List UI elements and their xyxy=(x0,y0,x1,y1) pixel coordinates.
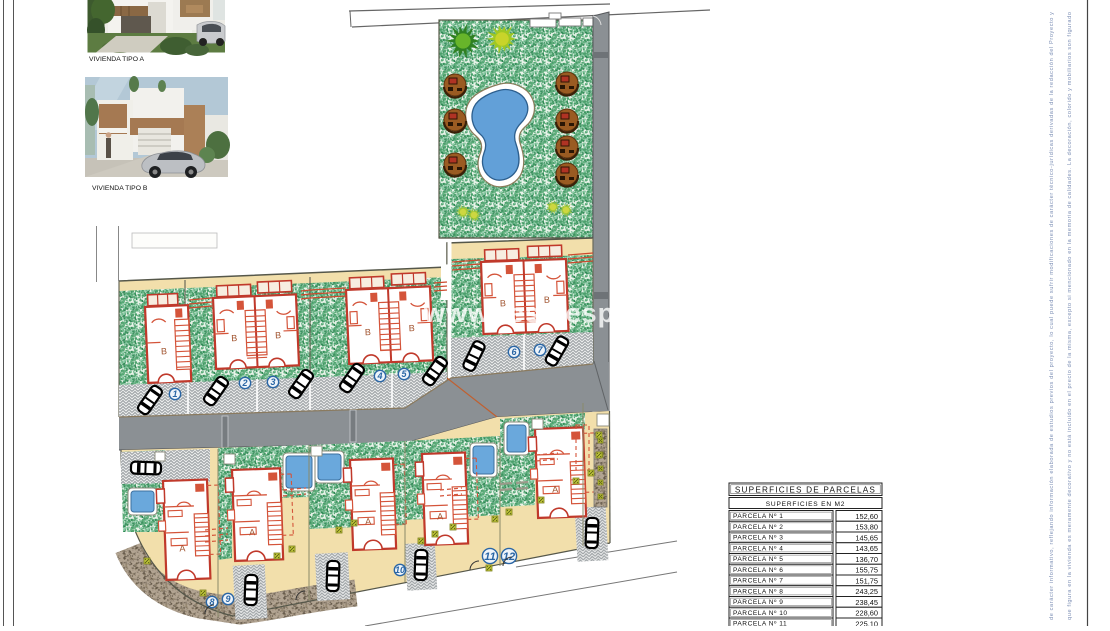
svg-text:www.resalespainhomes: www.resalespainhomes xyxy=(423,298,749,328)
svg-text:SUPERFICIES EN M2: SUPERFICIES EN M2 xyxy=(766,501,846,508)
svg-text:PARCELA Nº 2: PARCELA Nº 2 xyxy=(733,524,783,531)
svg-text:10: 10 xyxy=(395,565,405,575)
svg-text:VIVIENDA TIPO B: VIVIENDA TIPO B xyxy=(92,185,148,192)
svg-text:PARCELA Nº 4: PARCELA Nº 4 xyxy=(733,545,783,552)
svg-text:A: A xyxy=(552,484,558,494)
svg-text:A: A xyxy=(249,527,255,537)
svg-text:9: 9 xyxy=(225,594,230,604)
svg-text:PARCELA Nº 8: PARCELA Nº 8 xyxy=(733,588,783,595)
svg-text:A: A xyxy=(437,511,443,521)
svg-text:B: B xyxy=(231,333,237,343)
svg-text:136,70: 136,70 xyxy=(855,555,878,564)
svg-text:228,60: 228,60 xyxy=(855,609,878,618)
svg-text:1: 1 xyxy=(172,389,177,399)
svg-text:155,75: 155,75 xyxy=(855,566,878,575)
svg-text:2: 2 xyxy=(241,378,247,388)
svg-text:que figura en la vivienda es m: que figura en la vivienda es meramente d… xyxy=(1067,12,1073,620)
svg-text:B: B xyxy=(275,330,281,340)
svg-text:A: A xyxy=(365,516,371,526)
svg-text:153,80: 153,80 xyxy=(855,523,878,532)
svg-text:151,75: 151,75 xyxy=(855,576,878,585)
svg-text:PARCELA Nº 1: PARCELA Nº 1 xyxy=(733,513,783,520)
svg-text:de carácter informativo, refle: de carácter informativo, reflejando info… xyxy=(1049,12,1055,620)
svg-text:3: 3 xyxy=(270,377,275,387)
svg-text:B: B xyxy=(365,327,371,337)
svg-text:VIVIENDA TIPO A: VIVIENDA TIPO A xyxy=(89,56,144,63)
svg-text:B: B xyxy=(409,323,415,333)
svg-text:PARCELA Nº 5: PARCELA Nº 5 xyxy=(733,556,783,563)
svg-text:4: 4 xyxy=(376,371,382,381)
svg-text:PARCELA Nº 11: PARCELA Nº 11 xyxy=(733,621,787,626)
svg-text:SUPERFICIES DE PARCELAS: SUPERFICIES DE PARCELAS xyxy=(735,486,876,495)
svg-text:145,65: 145,65 xyxy=(855,533,878,542)
svg-text:143,65: 143,65 xyxy=(855,544,878,553)
svg-text:B: B xyxy=(161,346,167,356)
svg-text:11: 11 xyxy=(484,551,495,563)
svg-text:PARCELA Nº 3: PARCELA Nº 3 xyxy=(733,535,783,542)
svg-text:238,45: 238,45 xyxy=(855,598,878,607)
svg-text:243,25: 243,25 xyxy=(855,587,878,596)
svg-text:PARCELA Nº 6: PARCELA Nº 6 xyxy=(733,567,783,574)
svg-text:PARCELA Nº 7: PARCELA Nº 7 xyxy=(733,578,783,585)
svg-text:225,10: 225,10 xyxy=(855,619,878,626)
svg-text:A: A xyxy=(179,543,185,553)
svg-text:PARCELA Nº 10: PARCELA Nº 10 xyxy=(733,610,788,617)
svg-text:152,60: 152,60 xyxy=(855,512,878,521)
svg-text:PARCELA Nº 9: PARCELA Nº 9 xyxy=(733,599,783,606)
